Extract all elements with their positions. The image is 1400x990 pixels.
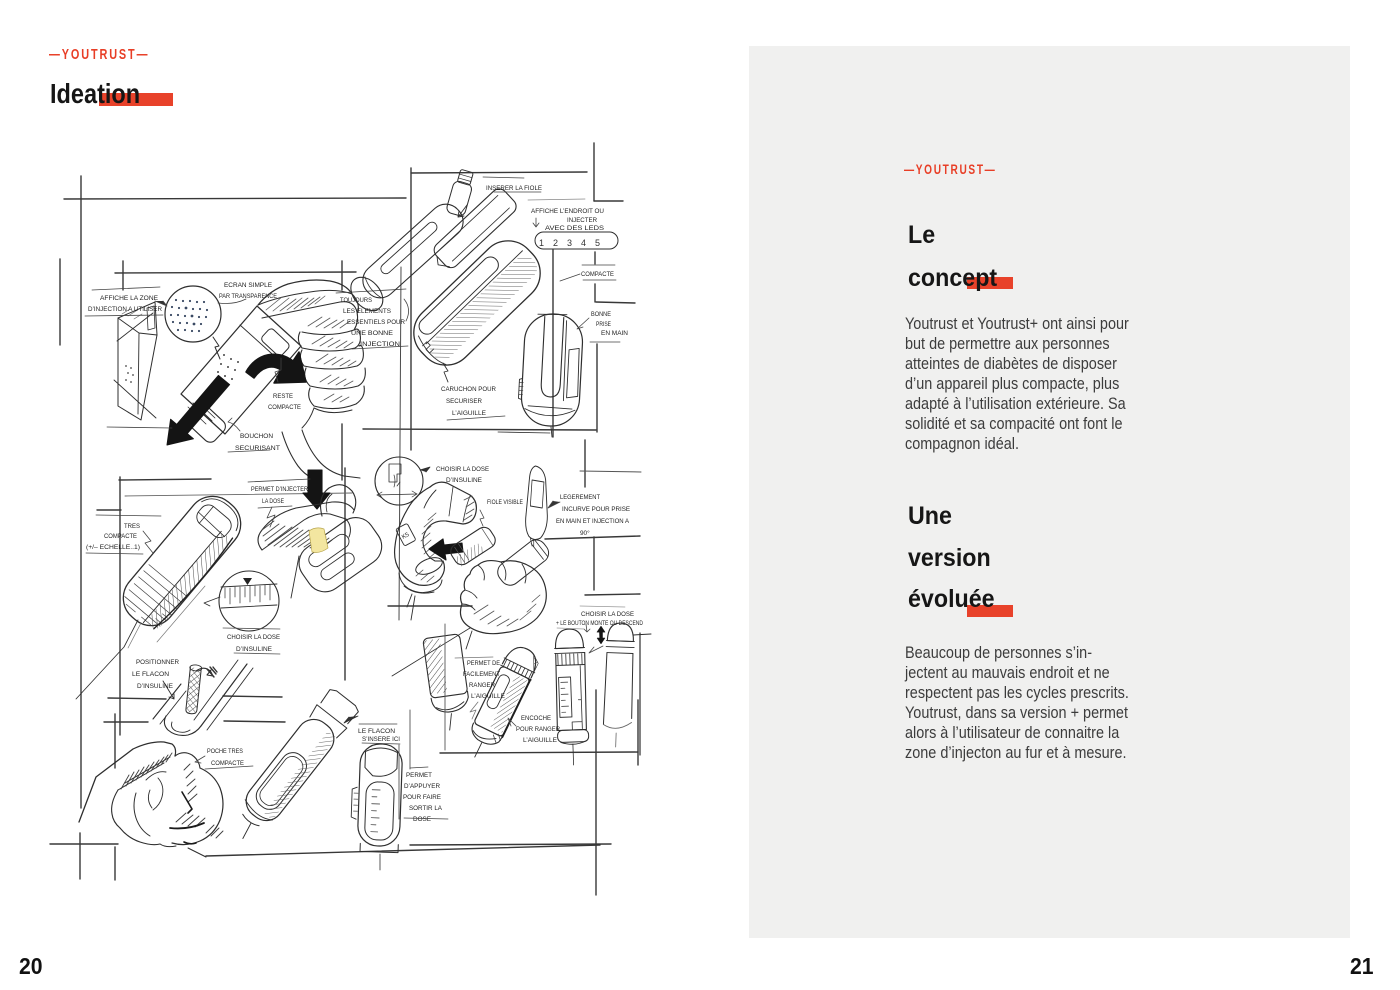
svg-text:PERMET DE: PERMET DE (467, 660, 500, 667)
svg-text:2: 2 (553, 238, 558, 248)
svg-text:D’INJECTION A UTILISER: D’INJECTION A UTILISER (88, 306, 162, 313)
svg-text:D’APPUYER: D’APPUYER (404, 783, 440, 790)
svg-text:D’INSULINE: D’INSULINE (446, 477, 482, 484)
svg-text:LE FLACON: LE FLACON (358, 728, 395, 735)
svg-text:ENCOCHE: ENCOCHE (521, 715, 551, 722)
svg-text:BONNE: BONNE (591, 311, 611, 318)
svg-text:EN MAIN ET INJECTION A: EN MAIN ET INJECTION A (556, 518, 630, 525)
svg-text:FACILEMENT: FACILEMENT (463, 671, 500, 678)
svg-text:INJECTER: INJECTER (567, 217, 597, 224)
svg-text:4: 4 (581, 238, 586, 248)
svg-text:D’INSULINE: D’INSULINE (236, 646, 272, 653)
svg-text:SORTIR LA: SORTIR LA (409, 805, 443, 812)
svg-text:90°: 90° (580, 529, 590, 537)
svg-text:POUR FAIRE: POUR FAIRE (403, 794, 441, 801)
svg-text:L’AIGUILLE: L’AIGUILLE (471, 693, 505, 700)
svg-text:AFFICHE L’ENDROIT OU: AFFICHE L’ENDROIT OU (531, 208, 604, 215)
svg-text:RESTE: RESTE (273, 393, 293, 400)
svg-text:LE FLACON: LE FLACON (132, 671, 169, 678)
svg-text:SECURISER: SECURISER (446, 398, 482, 405)
svg-text:S’INSERE ICI: S’INSERE ICI (362, 736, 400, 743)
svg-text:AFFICHE LA ZONE: AFFICHE LA ZONE (100, 295, 158, 302)
svg-text:PERMET: PERMET (406, 772, 432, 779)
svg-text:(+/– ECHELLE..1): (+/– ECHELLE..1) (86, 544, 140, 551)
svg-text:CHOISIR LA DOSE: CHOISIR LA DOSE (436, 466, 489, 473)
svg-text:UNE BONNE: UNE BONNE (351, 330, 393, 337)
svg-text:K5: K5 (401, 532, 411, 541)
svg-text:COMPACTE: COMPACTE (581, 271, 614, 278)
svg-text:EN MAIN: EN MAIN (601, 330, 628, 337)
svg-text:PAR TRANSPARENCE: PAR TRANSPARENCE (219, 293, 277, 300)
svg-text:+ LE BOUTON MONTE OU DESC: + LE BOUTON MONTE OU DESCEND (556, 620, 643, 627)
svg-text:RANGER: RANGER (469, 682, 495, 689)
svg-text:LEGEREMENT: LEGEREMENT (560, 494, 600, 501)
svg-text:5: 5 (595, 238, 600, 248)
svg-text:LA DOSE: LA DOSE (262, 498, 284, 505)
svg-text:CHOISIR LA DOSE: CHOISIR LA DOSE (227, 634, 280, 641)
svg-text:POSITIONNER: POSITIONNER (136, 659, 179, 666)
svg-text:CARUCHON POUR: CARUCHON POUR (441, 386, 496, 393)
svg-text:ECRAN SIMPLE: ECRAN SIMPLE (224, 282, 272, 289)
svg-text:INCURVE POUR PRISE: INCURVE POUR PRISE (562, 506, 630, 513)
svg-text:PRISE: PRISE (596, 321, 611, 328)
svg-text:3: 3 (567, 238, 572, 248)
svg-text:FIOLE VISIBLE: FIOLE VISIBLE (487, 499, 523, 506)
svg-text:ESSENTIELS POUR: ESSENTIELS POUR (347, 319, 405, 326)
svg-text:COMPACTE: COMPACTE (211, 760, 244, 767)
svg-text:L’AIGUILLE: L’AIGUILLE (523, 737, 557, 744)
svg-text:COMPACTE: COMPACTE (268, 404, 301, 411)
svg-text:POUR RANGER: POUR RANGER (516, 726, 560, 733)
svg-text:AVEC DES LEDS: AVEC DES LEDS (545, 225, 604, 232)
svg-text:COMPACTE: COMPACTE (104, 533, 137, 540)
svg-text:CHOISIR LA DOSE: CHOISIR LA DOSE (581, 611, 634, 618)
svg-text:POCHE TRES: POCHE TRES (207, 748, 243, 755)
svg-text:D’INSULINE: D’INSULINE (137, 683, 173, 690)
svg-text:INSERER LA FIOLE: INSERER LA FIOLE (486, 185, 542, 192)
svg-text:1: 1 (539, 238, 544, 248)
svg-text:TRES: TRES (124, 523, 140, 530)
svg-text:L’AIGUILLE: L’AIGUILLE (452, 410, 486, 417)
svg-text:DOSE: DOSE (413, 816, 431, 823)
svg-text:BOUCHON: BOUCHON (240, 433, 273, 440)
svg-text:PERMET D’INJECTER: PERMET D’INJECTER (251, 486, 308, 493)
